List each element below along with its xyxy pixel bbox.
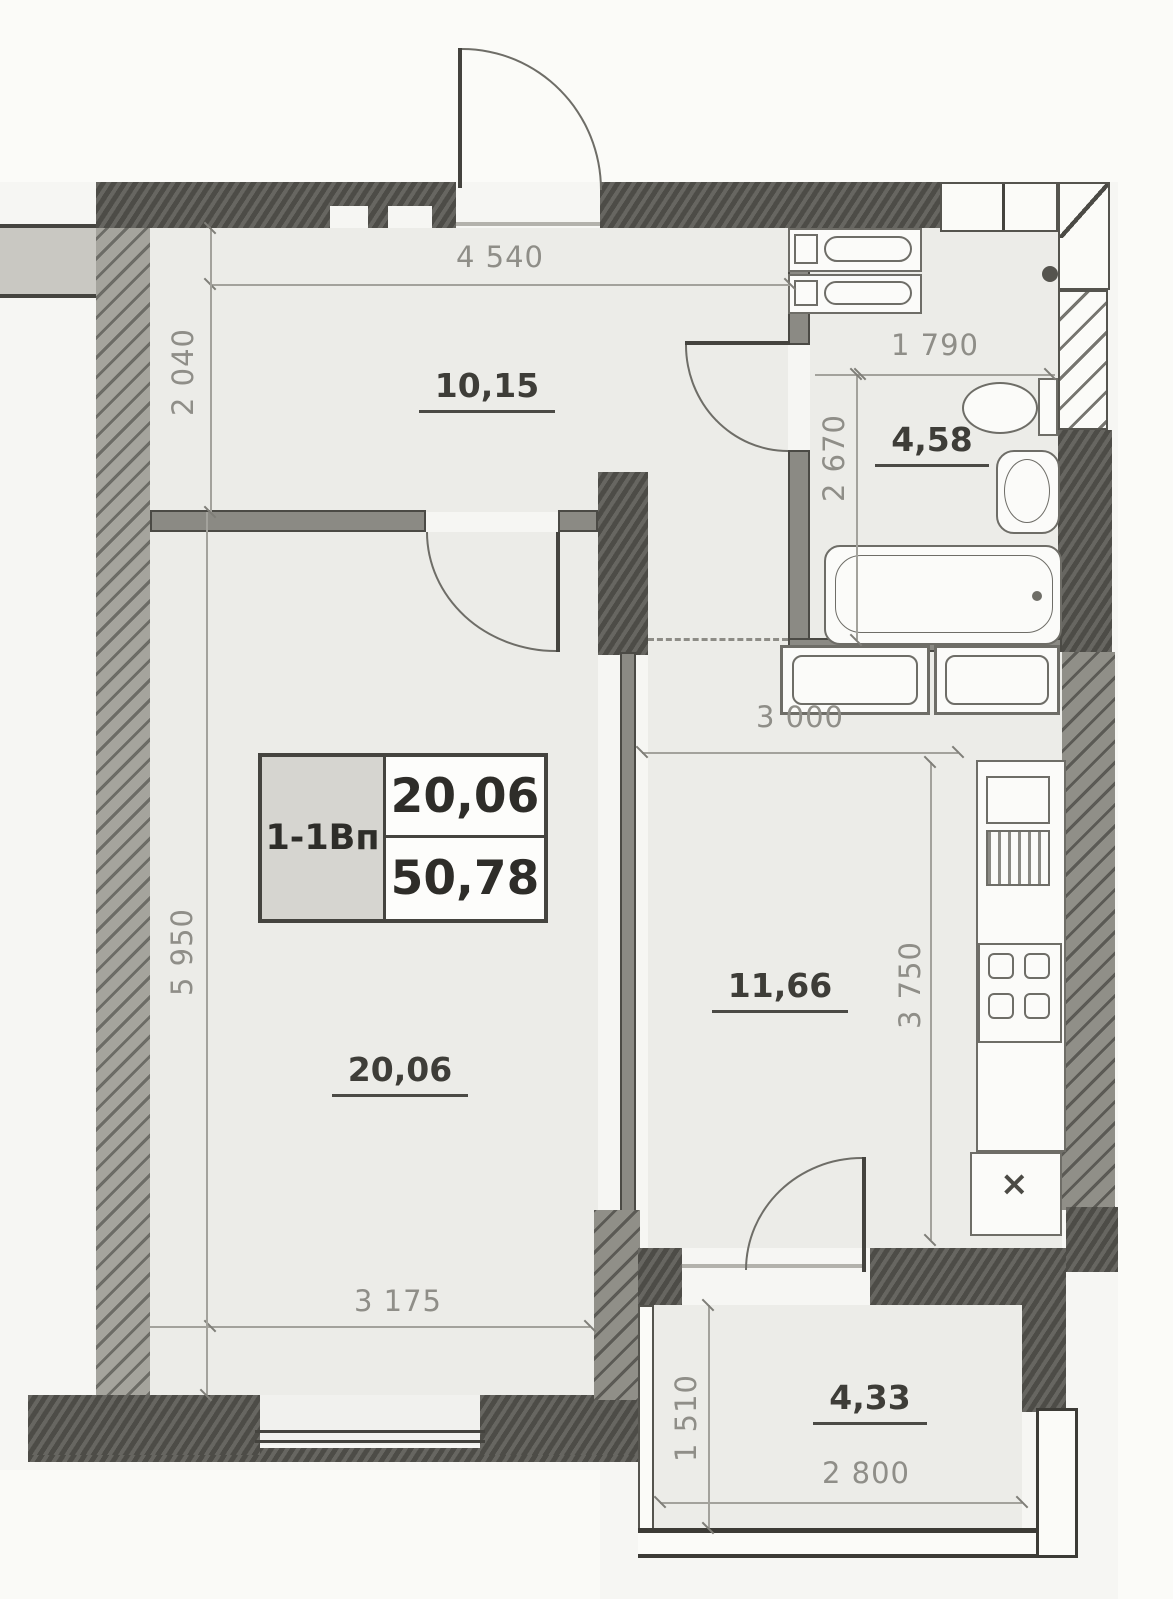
wall-bathroom-left-lower — [788, 450, 810, 652]
wall-bottom-pier-left — [28, 1395, 260, 1455]
vent-shaft-2-slot — [824, 281, 912, 305]
dim-balcony-depth: 1 510 — [669, 1374, 703, 1462]
cabinet-box-1-inner — [792, 655, 918, 705]
dim-kitchen-depth: 3 750 — [893, 941, 927, 1029]
bathroom-sink — [996, 450, 1060, 534]
toilet-tank — [1038, 378, 1058, 436]
stove-burner-1 — [988, 953, 1014, 979]
vent-shaft-box-1 — [788, 228, 922, 272]
dim-living-width: 3 175 — [318, 1284, 478, 1318]
wall-right-bathroom — [1058, 430, 1112, 652]
wall-center-thin — [620, 652, 636, 1212]
dim-bathroom-width: 1 790 — [855, 328, 1015, 362]
vent-shaft-2-cap — [794, 280, 818, 306]
wall-corner-bevel — [1060, 184, 1108, 238]
stove-burner-2 — [1024, 953, 1050, 979]
living-window-glass-line-1 — [255, 1430, 485, 1433]
wall-hall-living-stub — [558, 510, 598, 532]
balcony-right-wall — [1022, 1295, 1066, 1412]
bathtub — [824, 545, 1062, 645]
dim-line-living-depth — [206, 512, 208, 1395]
apartment-total-area: 50,78 — [386, 838, 544, 919]
room-passage-floor — [648, 512, 788, 652]
cabinet-box-2-inner — [945, 655, 1049, 705]
wall-top-vent-notch-1 — [330, 206, 368, 228]
room-label-bathroom: 4,58 — [862, 420, 1002, 467]
wall-top-vent-notch-2 — [388, 206, 432, 228]
bathroom-sink-basin — [1004, 459, 1050, 523]
apartment-room-area: 20,06 — [386, 757, 544, 838]
entry-threshold — [456, 222, 600, 226]
room-label-living: 20,06 — [325, 1050, 475, 1097]
apartment-unit-label: 1-1Вп — [262, 757, 386, 919]
balcony-railing-bottom — [638, 1528, 1078, 1558]
floor-plan: × 4 540 2 040 1 790 2 670 3 000 5 950 3 … — [0, 0, 1173, 1599]
stove-burner-3 — [988, 993, 1014, 1019]
pipe-dot — [1042, 266, 1058, 282]
kitchen-sink — [986, 776, 1050, 824]
door-living-leaf — [556, 532, 560, 652]
dim-hall-width: 4 540 — [420, 240, 580, 274]
room-label-hall-text: 10,15 — [419, 366, 555, 413]
dim-line-kitchen-depth — [930, 762, 932, 1240]
dim-living-depth: 5 950 — [165, 908, 199, 996]
wall-right-kitchen-corner — [1066, 1207, 1118, 1272]
dim-hall-depth: 2 040 — [166, 328, 200, 416]
bathtub-drain — [1032, 591, 1042, 601]
room-label-balcony-text: 4,33 — [813, 1378, 926, 1425]
cabinet-box-2 — [934, 645, 1060, 715]
wall-topright-panel — [940, 182, 1058, 232]
wall-left-exterior — [96, 228, 150, 1395]
wall-top-right — [600, 182, 940, 228]
room-label-balcony: 4,33 — [800, 1378, 940, 1425]
wall-bottom-pier-right — [480, 1395, 640, 1455]
wall-center-pillar-top — [598, 472, 648, 655]
dim-line-kitchen-width — [642, 752, 958, 754]
dim-line-hall-depth — [210, 228, 212, 512]
kitchen-drainer — [986, 830, 1050, 886]
dim-line-bathroom-depth — [856, 374, 858, 640]
room-label-kitchen-text: 11,66 — [712, 966, 848, 1013]
balcony-railing-right — [1036, 1408, 1078, 1558]
room-label-kitchen: 11,66 — [700, 966, 860, 1013]
paper-margin-right — [1118, 0, 1173, 1599]
zone-boundary-dashed — [648, 638, 788, 641]
room-label-bathroom-text: 4,58 — [875, 420, 988, 467]
wall-neighbor-stub — [0, 224, 96, 298]
living-window-glass-line-2 — [255, 1440, 485, 1443]
wall-hall-living — [150, 510, 426, 532]
room-label-living-text: 20,06 — [332, 1050, 468, 1097]
dim-line-living-width — [150, 1326, 590, 1328]
room-label-hall: 10,15 — [412, 366, 562, 413]
wall-center-pillar-bottom — [594, 1210, 640, 1400]
dim-balcony-width: 2 800 — [786, 1456, 946, 1490]
living-window — [260, 1395, 480, 1445]
kitchen-stove — [978, 943, 1062, 1043]
dim-line-bathroom-width — [815, 374, 1055, 376]
room-living-floor — [150, 532, 598, 1395]
paper-margin-bottom-left — [0, 1470, 600, 1599]
wall-right-upper — [1058, 290, 1108, 430]
vent-x-symbol: × — [1000, 1164, 1029, 1204]
wall-balcony-pillar-left — [638, 1248, 682, 1305]
dim-bathroom-depth: 2 670 — [817, 414, 851, 502]
apartment-info-box: 1-1Вп 20,06 50,78 — [258, 753, 548, 923]
dim-line-balcony-width — [660, 1502, 1022, 1504]
dim-kitchen-width: 3 000 — [720, 700, 880, 734]
bathtub-inner — [835, 555, 1053, 633]
door-balcony-leaf — [862, 1157, 866, 1272]
wall-right-kitchen — [1062, 652, 1115, 1210]
vent-shaft-1-cap — [794, 234, 818, 264]
dim-line-hall-width — [210, 284, 790, 286]
vent-shaft-1-slot — [824, 236, 912, 262]
wall-topright-panel-divider — [1002, 184, 1005, 230]
balcony-left-wall — [638, 1305, 654, 1533]
dim-line-balcony-depth — [708, 1305, 710, 1528]
stove-burner-4 — [1024, 993, 1050, 1019]
vent-shaft-box-2 — [788, 274, 922, 314]
